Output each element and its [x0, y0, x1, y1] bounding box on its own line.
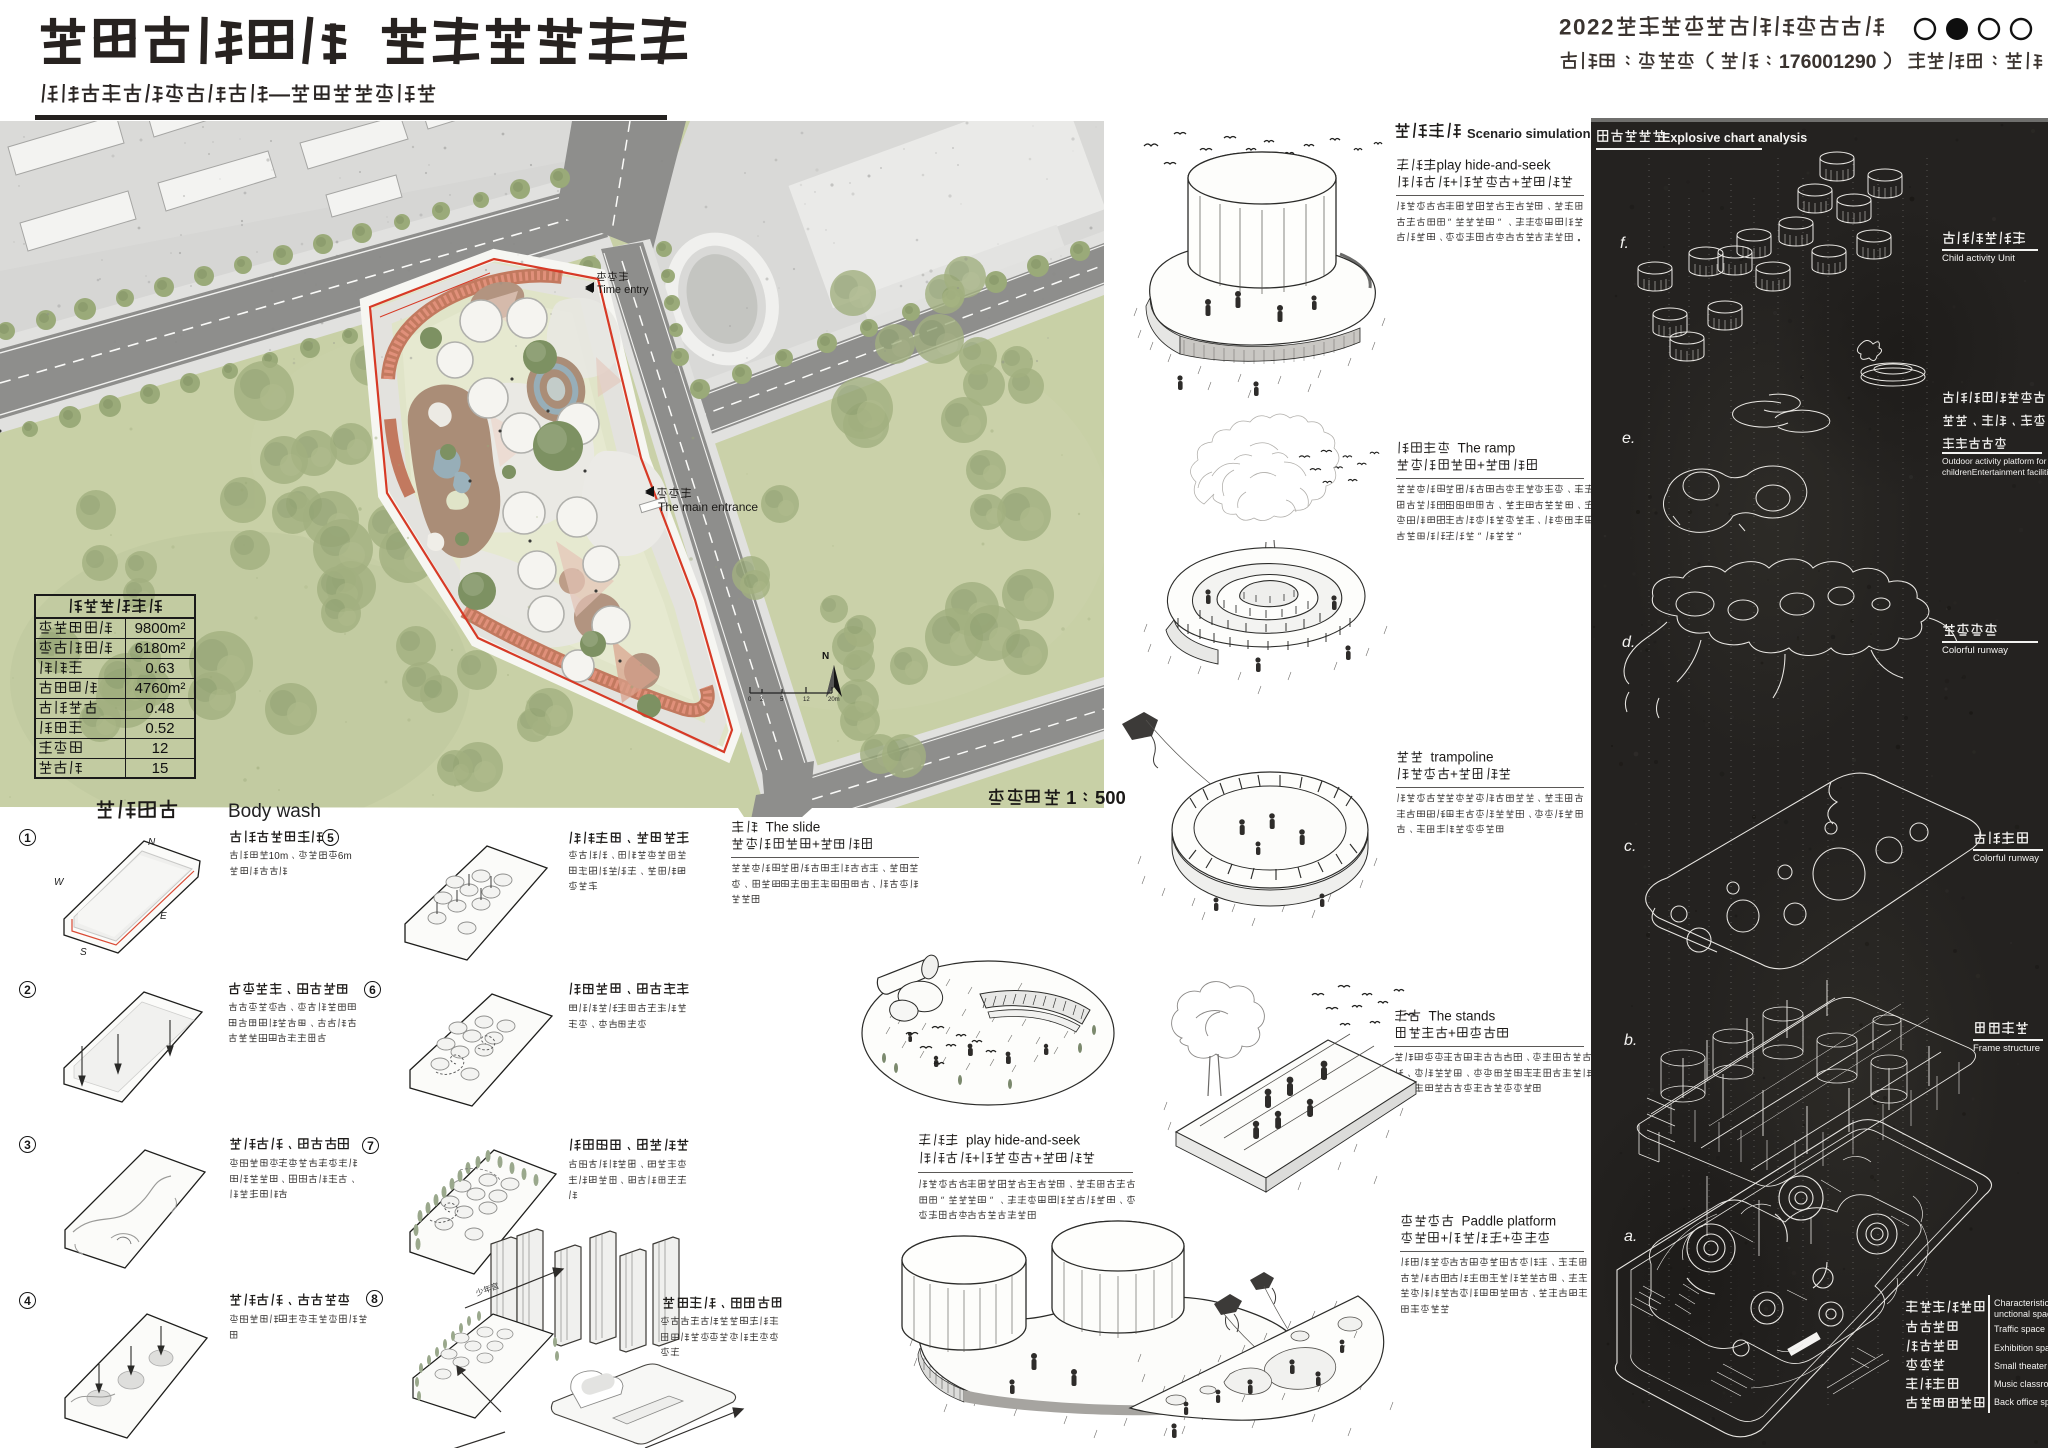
svg-text:N: N: [148, 837, 156, 848]
svg-text:20m: 20m: [828, 697, 840, 703]
svg-text:E: E: [160, 911, 167, 922]
svg-text:S: S: [80, 947, 87, 958]
svg-text:W: W: [54, 877, 65, 888]
svg-text:N: N: [822, 651, 829, 662]
svg-text:12: 12: [803, 697, 810, 703]
